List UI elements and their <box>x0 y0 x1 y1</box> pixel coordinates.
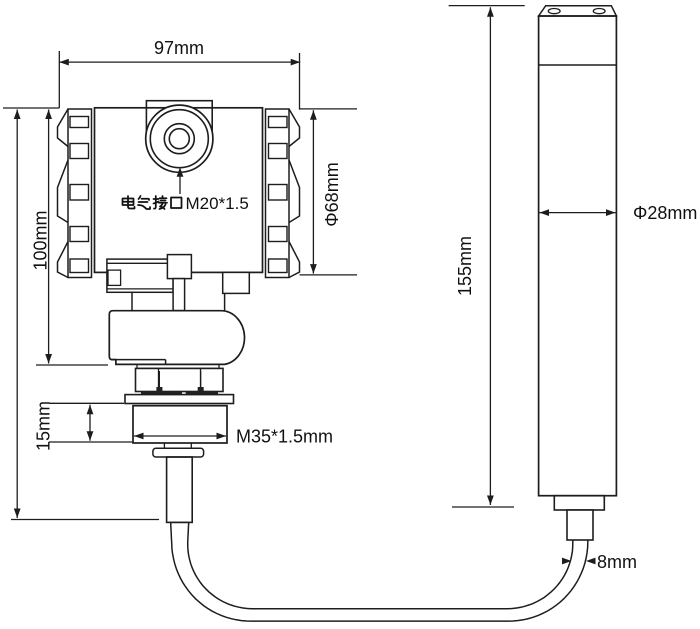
svg-text:Φ28mm: Φ28mm <box>633 203 697 223</box>
svg-text:Φ68mm: Φ68mm <box>322 162 342 226</box>
svg-text:97mm: 97mm <box>154 38 204 58</box>
svg-text:8mm: 8mm <box>597 552 637 572</box>
svg-text:100mm: 100mm <box>31 210 51 270</box>
svg-text:M20*1.5: M20*1.5 <box>186 194 249 213</box>
svg-text:155mm: 155mm <box>455 236 475 296</box>
svg-text:15mm: 15mm <box>34 401 54 451</box>
svg-text:M35*1.5mm: M35*1.5mm <box>236 427 333 447</box>
